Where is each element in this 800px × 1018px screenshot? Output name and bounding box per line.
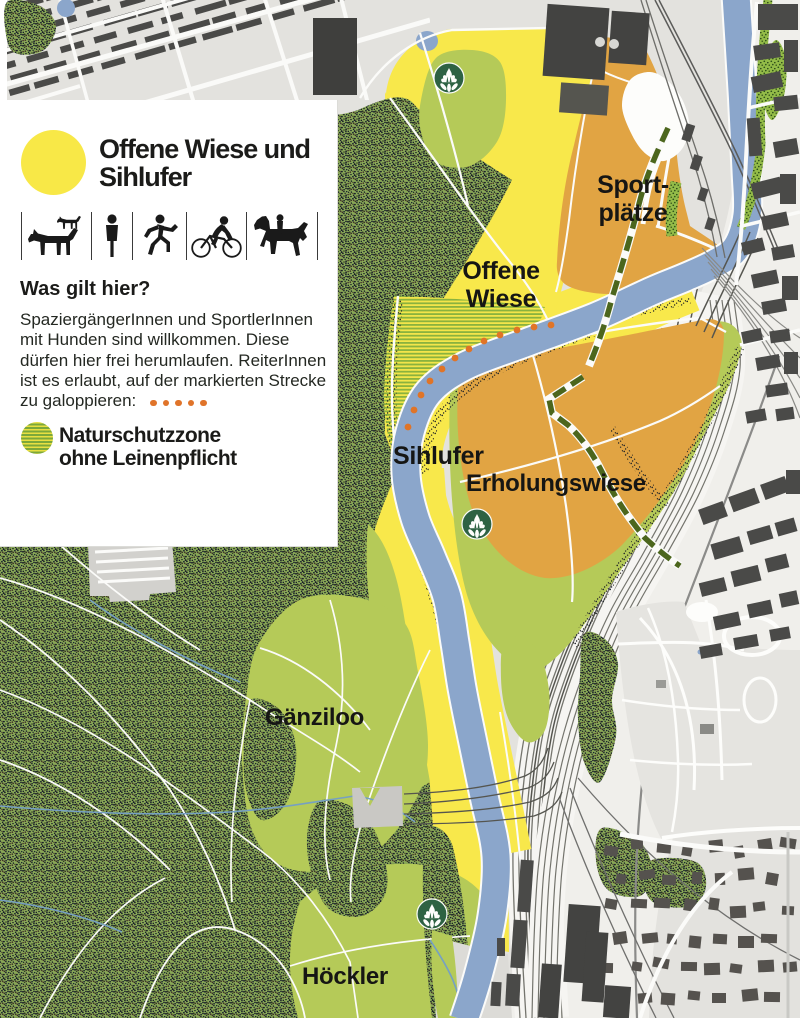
svg-text:Sihlufer: Sihlufer: [393, 442, 484, 470]
svg-text:Gänziloo: Gänziloo: [265, 704, 364, 731]
svg-text:Offene: Offene: [462, 257, 540, 285]
svg-text:plätze: plätze: [598, 199, 667, 227]
svg-text:Erholungswiese: Erholungswiese: [466, 470, 646, 497]
svg-text:Sport-: Sport-: [597, 171, 669, 199]
svg-text:Wiese: Wiese: [466, 285, 537, 313]
svg-text:Höckler: Höckler: [302, 963, 388, 990]
